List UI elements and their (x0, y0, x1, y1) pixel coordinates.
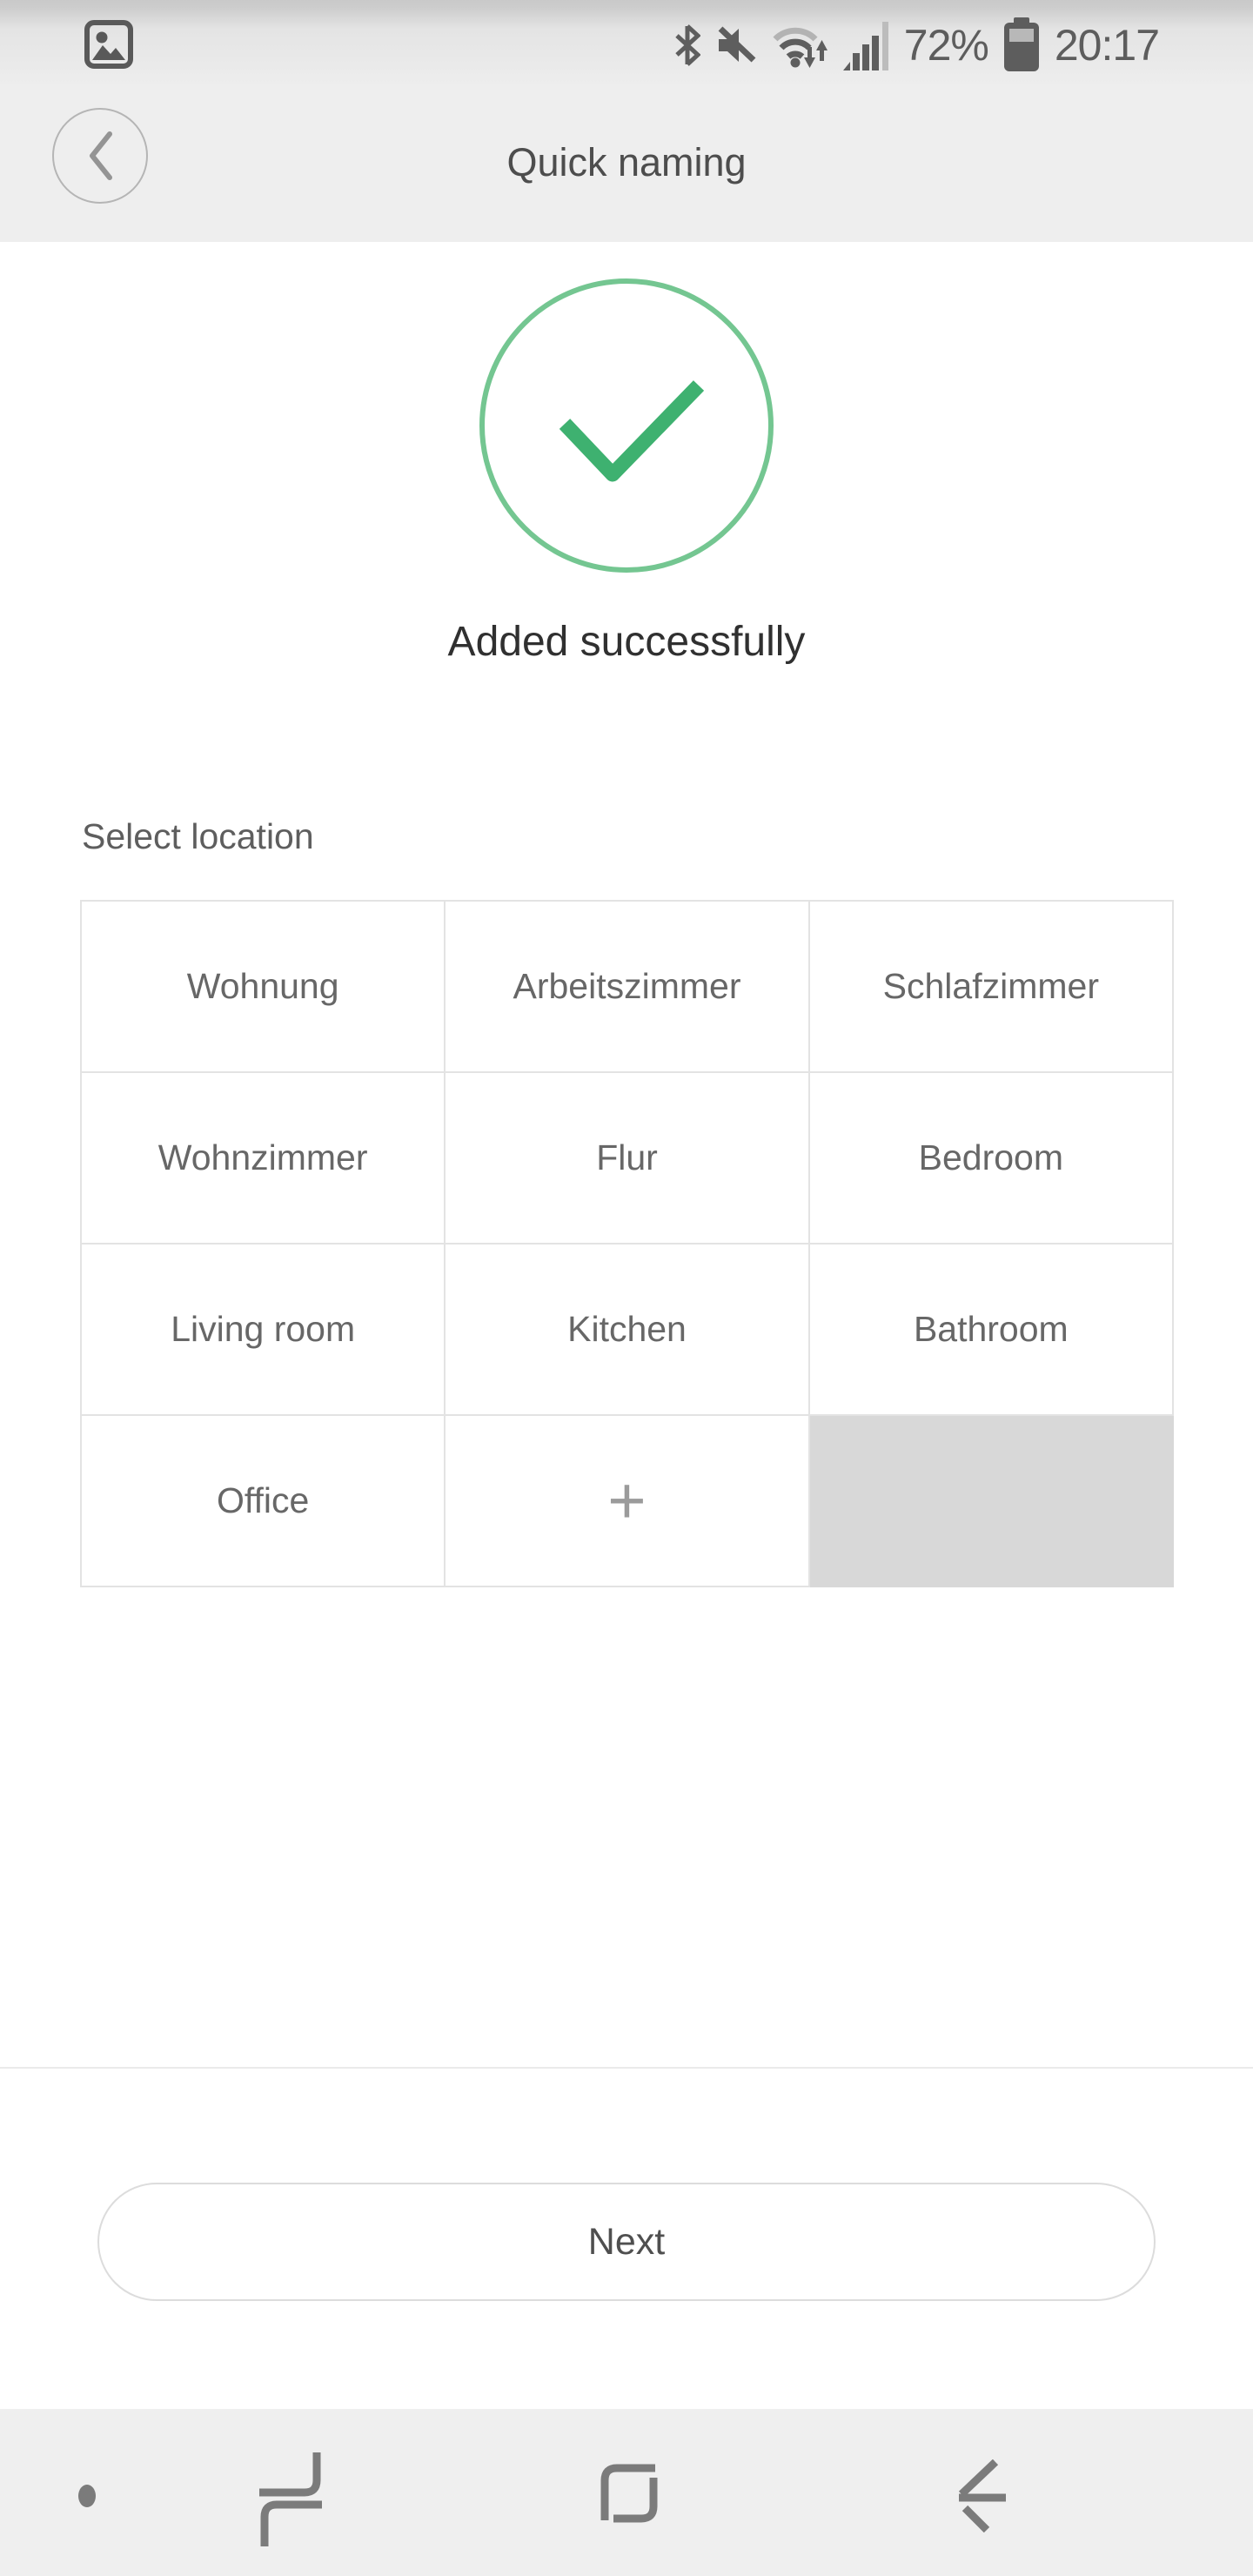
status-icons: 72% 20:17 (674, 0, 1159, 91)
back-icon (954, 2459, 1008, 2532)
location-cell-wohnzimmer[interactable]: Wohnzimmer (82, 1073, 446, 1244)
battery-icon (1002, 17, 1041, 73)
home-icon (600, 2463, 659, 2524)
mute-icon (714, 24, 758, 66)
battery-percent: 72% (904, 20, 988, 70)
notification-area (84, 19, 134, 70)
location-cell-bathroom[interactable]: Bathroom (810, 1244, 1174, 1416)
recent-apps-button[interactable] (252, 2451, 339, 2548)
empty-placeholder-cell (810, 1416, 1174, 1587)
success-message: Added successfully (0, 618, 1253, 666)
page-title: Quick naming (0, 84, 1253, 242)
location-cell-schlafzimmer[interactable]: Schlafzimmer (810, 902, 1174, 1073)
green-check-circle-icon (479, 278, 774, 574)
recent-apps-icon (252, 2451, 339, 2548)
add-location-button[interactable]: + (446, 1416, 809, 1587)
footer-divider (0, 2067, 1253, 2069)
location-cell-office[interactable]: Office (82, 1416, 446, 1587)
select-location-label: Select location (82, 816, 314, 857)
header: Quick naming (0, 84, 1253, 242)
android-nav-bar (0, 2409, 1253, 2576)
location-cell-living-room[interactable]: Living room (82, 1244, 446, 1416)
clock: 20:17 (1055, 20, 1159, 70)
location-grid: Wohnung Arbeitszimmer Schlafzimmer Wohnz… (80, 900, 1174, 1587)
location-cell-flur[interactable]: Flur (446, 1073, 809, 1244)
status-bar: 72% 20:17 (0, 0, 1253, 84)
signal-strength-icon (843, 20, 890, 70)
wifi-traffic-icon (772, 21, 829, 70)
location-cell-arbeitszimmer[interactable]: Arbeitszimmer (446, 902, 809, 1073)
home-button[interactable] (600, 2463, 659, 2524)
screenshot-notification-icon (84, 19, 134, 70)
quick-naming-screen: 72% 20:17 Quick naming Added successfull… (0, 0, 1253, 2576)
bluetooth-icon (674, 23, 700, 67)
hide-navbar-dot[interactable] (77, 2484, 97, 2508)
next-button[interactable]: Next (97, 2183, 1156, 2301)
location-cell-bedroom[interactable]: Bedroom (810, 1073, 1174, 1244)
back-nav-button[interactable] (954, 2459, 1008, 2532)
location-cell-kitchen[interactable]: Kitchen (446, 1244, 809, 1416)
dot-icon (78, 2485, 96, 2507)
location-cell-wohnung[interactable]: Wohnung (82, 902, 446, 1073)
